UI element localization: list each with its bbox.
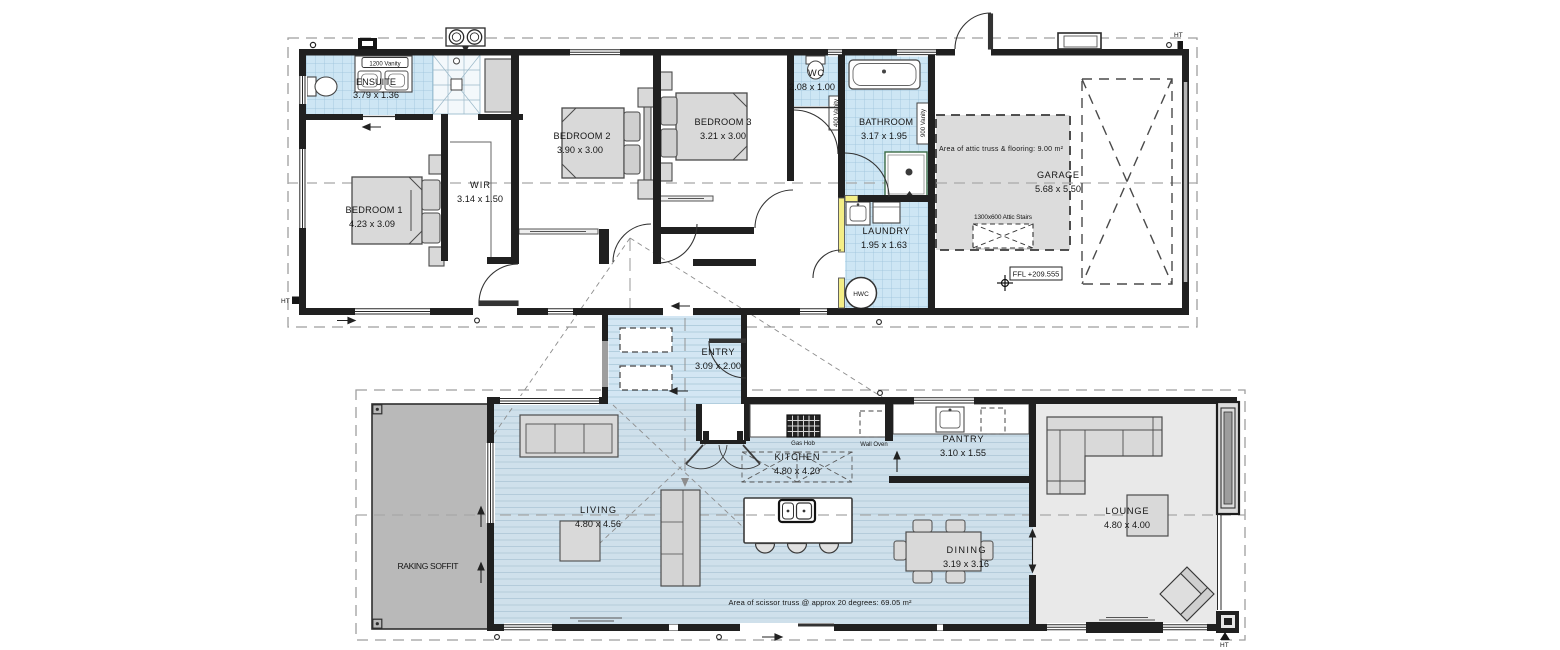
- svg-text:KITCHEN: KITCHEN: [775, 452, 820, 462]
- svg-text:BEDROOM 1: BEDROOM 1: [346, 205, 403, 215]
- svg-text:HT: HT: [1174, 32, 1183, 39]
- svg-text:4.23 x 3.09: 4.23 x 3.09: [349, 219, 395, 229]
- svg-text:5.68 x 5.50: 5.68 x 5.50: [1035, 184, 1081, 194]
- svg-text:Gas Hob: Gas Hob: [791, 441, 815, 447]
- svg-text:2.08 x 1.00: 2.08 x 1.00: [789, 82, 835, 92]
- svg-text:RAKING SOFFIT: RAKING SOFFIT: [398, 561, 459, 571]
- svg-text:Wall Oven: Wall Oven: [860, 442, 887, 448]
- svg-text:LAUNDRY: LAUNDRY: [863, 226, 910, 236]
- svg-text:DINING: DINING: [947, 545, 986, 555]
- svg-text:ENTRY: ENTRY: [702, 347, 735, 357]
- svg-text:900 Vanity: 900 Vanity: [921, 109, 927, 137]
- svg-text:3.19 x 3.16: 3.19 x 3.16: [943, 559, 989, 569]
- svg-text:FFL +209.555: FFL +209.555: [1013, 270, 1060, 279]
- svg-text:Area of scissor truss @ approx: Area of scissor truss @ approx 20 degree…: [729, 598, 913, 607]
- svg-text:1200 Vanity: 1200 Vanity: [369, 62, 400, 68]
- svg-text:1300x600 Attic Stairs: 1300x600 Attic Stairs: [974, 214, 1033, 221]
- svg-text:3.17 x 1.95: 3.17 x 1.95: [861, 131, 907, 141]
- svg-text:4.80 x 4.56: 4.80 x 4.56: [575, 519, 621, 529]
- svg-text:PANTRY: PANTRY: [943, 434, 984, 444]
- svg-text:WC: WC: [808, 68, 824, 78]
- svg-text:3.79 x 1.36: 3.79 x 1.36: [353, 90, 399, 100]
- svg-text:HT: HT: [1220, 642, 1229, 649]
- svg-text:HWC: HWC: [853, 291, 869, 298]
- svg-text:WIR: WIR: [470, 180, 490, 190]
- svg-text:3.10 x 1.55: 3.10 x 1.55: [940, 448, 986, 458]
- svg-text:3.90 x 3.00: 3.90 x 3.00: [557, 145, 603, 155]
- svg-text:Area of attic truss & flooring: Area of attic truss & flooring: 9.00 m²: [939, 146, 1064, 153]
- svg-text:LIVING: LIVING: [580, 505, 616, 515]
- svg-text:GARAGE: GARAGE: [1037, 170, 1079, 180]
- svg-text:BEDROOM 3: BEDROOM 3: [695, 117, 752, 127]
- svg-text:HT: HT: [281, 298, 290, 305]
- svg-text:1.95 x 1.63: 1.95 x 1.63: [861, 240, 907, 250]
- svg-text:4.80 x 4.00: 4.80 x 4.00: [1104, 520, 1150, 530]
- svg-text:LOUNGE: LOUNGE: [1106, 506, 1149, 516]
- svg-text:3.09 x 2.00: 3.09 x 2.00: [695, 361, 741, 371]
- svg-text:ENSUITE: ENSUITE: [356, 77, 396, 87]
- svg-text:3.21 x 3.00: 3.21 x 3.00: [700, 131, 746, 141]
- svg-text:3.14 x 1.50: 3.14 x 1.50: [457, 194, 503, 204]
- svg-text:4.80 x 4.20: 4.80 x 4.20: [774, 466, 820, 476]
- svg-text:BEDROOM 2: BEDROOM 2: [554, 131, 611, 141]
- svg-text:BATHROOM: BATHROOM: [859, 117, 913, 127]
